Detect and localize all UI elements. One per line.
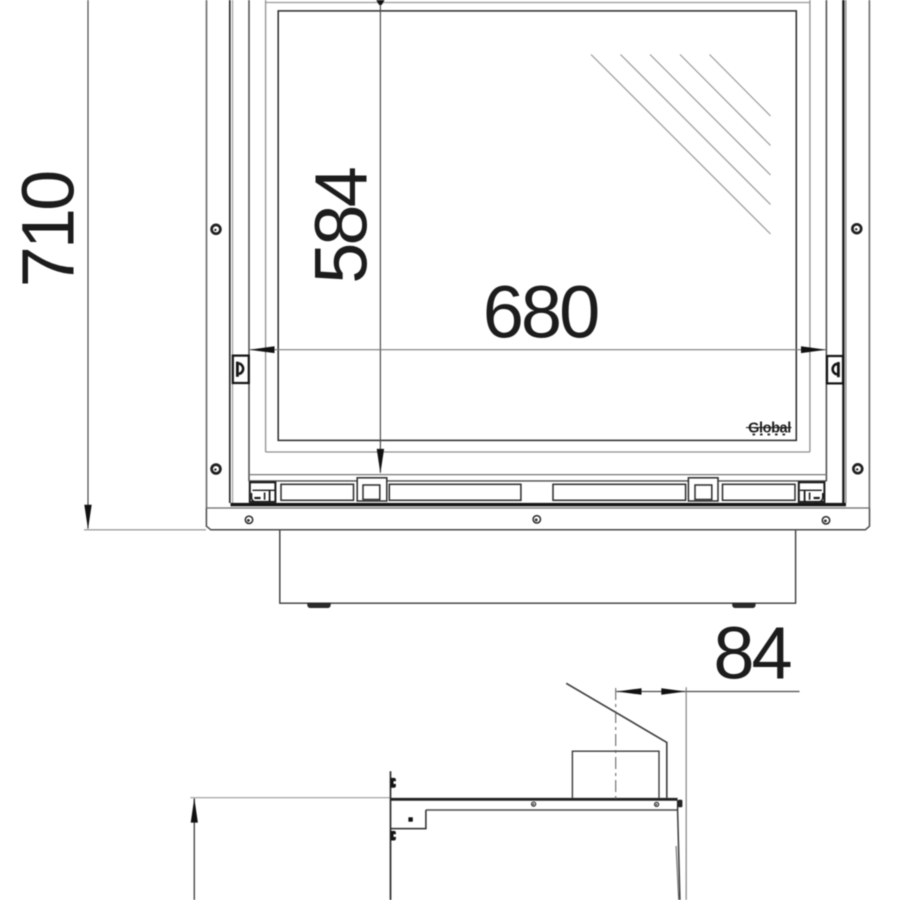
svg-text:710: 710: [7, 172, 90, 287]
svg-text:584: 584: [300, 168, 383, 283]
svg-text:84: 84: [713, 612, 790, 695]
svg-text:680: 680: [483, 271, 598, 354]
